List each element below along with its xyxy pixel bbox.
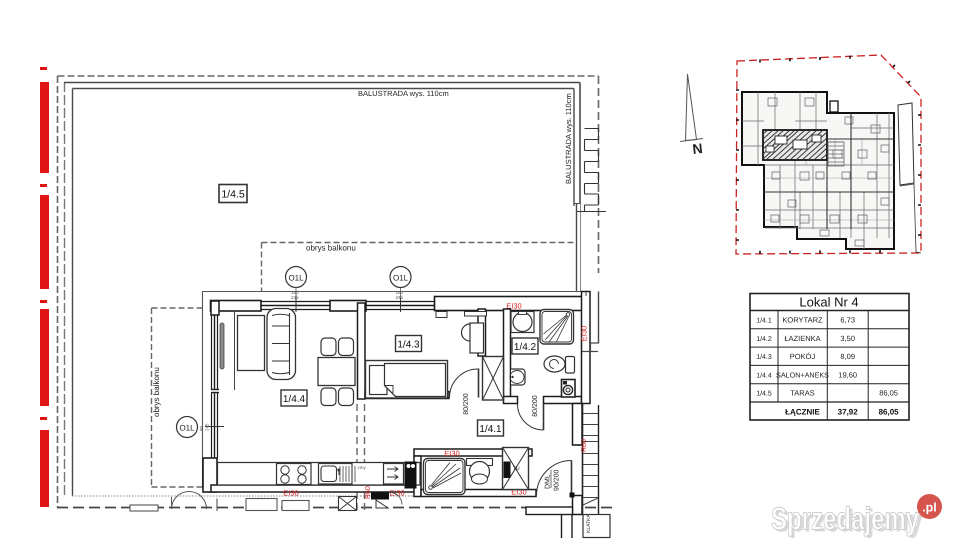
svg-text:EI30: EI30 [444, 449, 459, 458]
svg-text:1/4.1: 1/4.1 [479, 424, 502, 435]
svg-text:obrys balkonu: obrys balkonu [306, 244, 356, 253]
svg-text:ŁAZIENKA: ŁAZIENKA [784, 334, 820, 343]
svg-text:.pl: .pl [922, 501, 937, 515]
svg-text:1/4.1: 1/4.1 [756, 317, 772, 325]
svg-text:245: 245 [205, 423, 210, 431]
svg-text:O1L: O1L [288, 274, 304, 283]
svg-text:O1L: O1L [393, 274, 409, 283]
svg-text:1/4.2: 1/4.2 [756, 335, 772, 343]
svg-text:1/4.4: 1/4.4 [283, 394, 306, 405]
svg-text:19,60: 19,60 [838, 370, 857, 379]
svg-text:SALON+ANEKS: SALON+ANEKS [776, 370, 829, 379]
svg-text:86,05: 86,05 [879, 408, 900, 417]
svg-text:90/200: 90/200 [553, 469, 561, 491]
svg-text:TU: TU [513, 466, 520, 472]
svg-text:6,73: 6,73 [840, 316, 855, 325]
svg-text:1/4.2: 1/4.2 [514, 342, 537, 353]
svg-text:245: 245 [396, 295, 404, 300]
svg-text:1/4.3: 1/4.3 [756, 353, 772, 361]
svg-text:ŁĄCZNIE: ŁĄCZNIE [785, 408, 820, 417]
svg-text:Lokal Nr 4: Lokal Nr 4 [799, 295, 858, 310]
svg-text:245: 245 [291, 295, 299, 300]
svg-text:3,50: 3,50 [840, 334, 855, 343]
svg-text:BALUSTRADA wys. 110cm: BALUSTRADA wys. 110cm [358, 89, 449, 98]
svg-text:KLATKA: KLATKA [586, 514, 592, 533]
svg-text:POKÓJ: POKÓJ [790, 352, 816, 361]
svg-text:37,92: 37,92 [838, 408, 859, 417]
svg-text:KORYTARZ: KORYTARZ [782, 316, 823, 325]
svg-text:80/200: 80/200 [531, 395, 539, 417]
svg-text:1/4.4: 1/4.4 [756, 371, 772, 379]
svg-text:1/4.5: 1/4.5 [756, 390, 772, 398]
svg-text:TARAS: TARAS [790, 389, 814, 398]
svg-text:8,09: 8,09 [840, 352, 855, 361]
svg-text:obrys balkonu: obrys balkonu [152, 367, 161, 417]
svg-text:DML: DML [545, 474, 552, 489]
svg-text:Sprzedajemy: Sprzedajemy [771, 501, 919, 537]
svg-text:BALUSTRADA wys. 110cm: BALUSTRADA wys. 110cm [564, 93, 573, 184]
svg-text:EI30: EI30 [580, 326, 589, 341]
svg-text:1/4.5: 1/4.5 [221, 189, 245, 201]
svg-text:1/4.3: 1/4.3 [397, 340, 420, 351]
svg-text:zmy: zmy [358, 465, 367, 470]
svg-text:86,05: 86,05 [879, 389, 898, 398]
svg-text:80/200: 80/200 [462, 393, 470, 415]
svg-text:N: N [692, 140, 704, 157]
svg-text:EI30: EI30 [283, 489, 298, 498]
svg-text:80: 80 [199, 425, 204, 431]
svg-text:R60: R60 [365, 486, 372, 499]
svg-text:R60: R60 [581, 439, 588, 452]
svg-text:O1L: O1L [179, 424, 195, 433]
